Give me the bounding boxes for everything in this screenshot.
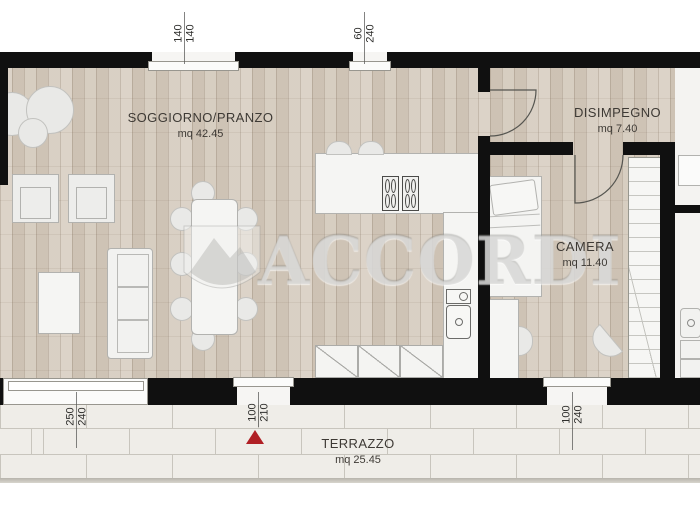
room-name: TERRAZZO: [278, 436, 438, 451]
room-label-camera: CAMERA mq 11.40: [520, 239, 650, 269]
watermark-logo-icon: [178, 220, 266, 310]
dimension-top-window-large: 140140: [174, 16, 197, 52]
floor-plan: ACCORDI SOGGIORNO/PRANZO mq 42.45 DISIMP…: [0, 0, 700, 525]
entrance-arrow-icon: [246, 430, 264, 444]
room-name: DISIMPEGNO: [540, 105, 695, 120]
room-label-soggiorno: SOGGIORNO/PRANZO mq 42.45: [108, 110, 293, 140]
dimension-camera-window: 100240: [562, 397, 585, 433]
room-label-disimpegno: DISIMPEGNO mq 7.40: [540, 105, 695, 135]
dimension-entrance: 100210: [248, 395, 271, 431]
dimension-terrace-door: 250240: [66, 399, 89, 435]
room-area: mq 7.40: [540, 123, 695, 135]
room-label-terrazzo: TERRAZZO mq 25.45: [278, 436, 438, 466]
room-name: SOGGIORNO/PRANZO: [108, 110, 293, 125]
room-name: CAMERA: [520, 239, 650, 254]
room-area: mq 42.45: [108, 128, 293, 140]
room-area: mq 11.40: [520, 257, 650, 269]
dimension-top-window-small: 60240: [354, 16, 377, 52]
room-area: mq 25.45: [278, 454, 438, 466]
